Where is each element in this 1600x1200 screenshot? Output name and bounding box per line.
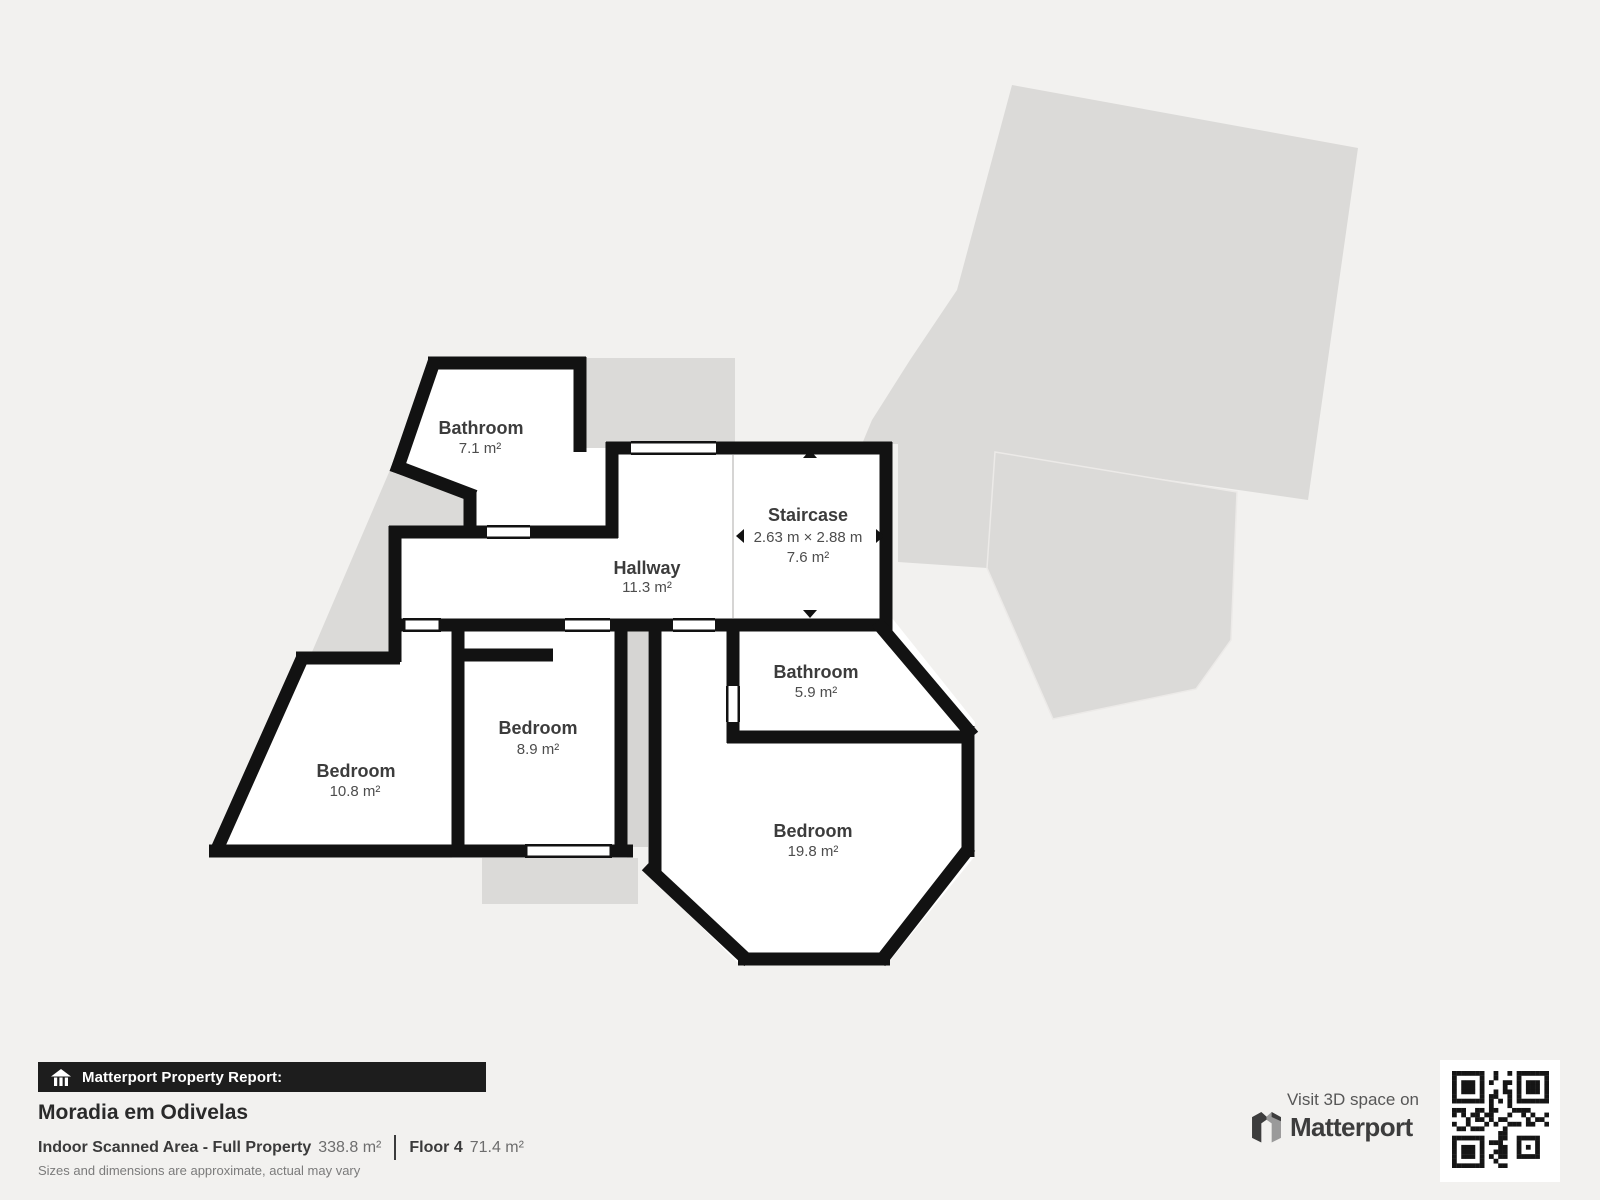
unscanned-shape-lower — [987, 452, 1237, 719]
room-label-bedroom-left: Bedroom — [316, 761, 395, 781]
room-area-bedroom-big: 19.8 m² — [788, 843, 839, 860]
room-area-bathroom-right: 5.9 m² — [795, 684, 838, 701]
room-area-hallway: 11.3 m² — [622, 579, 672, 596]
qr-panel — [1440, 1060, 1560, 1182]
room-label-hallway: Hallway — [613, 558, 680, 578]
room-label-bathroom-top: Bathroom — [439, 418, 524, 438]
room-area-staircase: 7.6 m² — [787, 549, 830, 566]
matterport-logo: Matterport — [1252, 1112, 1413, 1143]
room-label-bedroom-mid: Bedroom — [498, 718, 577, 738]
unscanned-rect-above-hallway — [585, 358, 735, 450]
floor-value: 71.4 m² — [470, 1139, 524, 1157]
window-opening — [631, 441, 716, 455]
scanned-area-label: Indoor Scanned Area - Full Property — [38, 1139, 311, 1157]
room-dims-staircase: 2.63 m × 2.88 m — [754, 529, 863, 546]
scanned-area-line: Indoor Scanned Area - Full Property 338.… — [38, 1135, 524, 1160]
door-opening — [487, 525, 530, 539]
door-opening — [726, 686, 740, 722]
room-area-bedroom-left: 10.8 m² — [330, 783, 381, 800]
floor-plan: Bathroom 7.1 m² Staircase 2.63 m × 2.88 … — [0, 0, 1600, 1200]
room-label-bathroom-right: Bathroom — [774, 662, 859, 682]
unscanned-rect-below-bedroom — [482, 858, 638, 904]
qr-code — [1452, 1071, 1549, 1168]
door-opening — [673, 618, 715, 632]
report-bar-label: Matterport Property Report: — [82, 1069, 282, 1086]
window-opening — [403, 618, 441, 632]
floor-label: Floor 4 — [409, 1139, 462, 1157]
scanned-area-value: 338.8 m² — [318, 1139, 381, 1157]
divider — [394, 1135, 396, 1160]
matterport-m-icon — [1252, 1112, 1281, 1143]
property-report-page: Bathroom 7.1 m² Staircase 2.63 m × 2.88 … — [0, 0, 1600, 1200]
house-icon — [51, 1069, 71, 1086]
visit-3d-text: Visit 3D space on — [1287, 1090, 1419, 1110]
room-label-bedroom-big: Bedroom — [773, 821, 852, 841]
door-opening — [565, 618, 610, 632]
room-area-bedroom-mid: 8.9 m² — [517, 741, 560, 758]
window-opening — [525, 844, 612, 858]
report-header-bar: Matterport Property Report: — [38, 1062, 486, 1092]
room-label-staircase: Staircase — [768, 505, 848, 525]
unscanned-sliver-between-bedrooms — [627, 631, 649, 847]
property-name: Moradia em Odivelas — [38, 1101, 248, 1125]
room-area-bathroom-top: 7.1 m² — [459, 440, 502, 457]
matterport-wordmark: Matterport — [1290, 1112, 1413, 1143]
disclaimer-text: Sizes and dimensions are approximate, ac… — [38, 1163, 360, 1178]
